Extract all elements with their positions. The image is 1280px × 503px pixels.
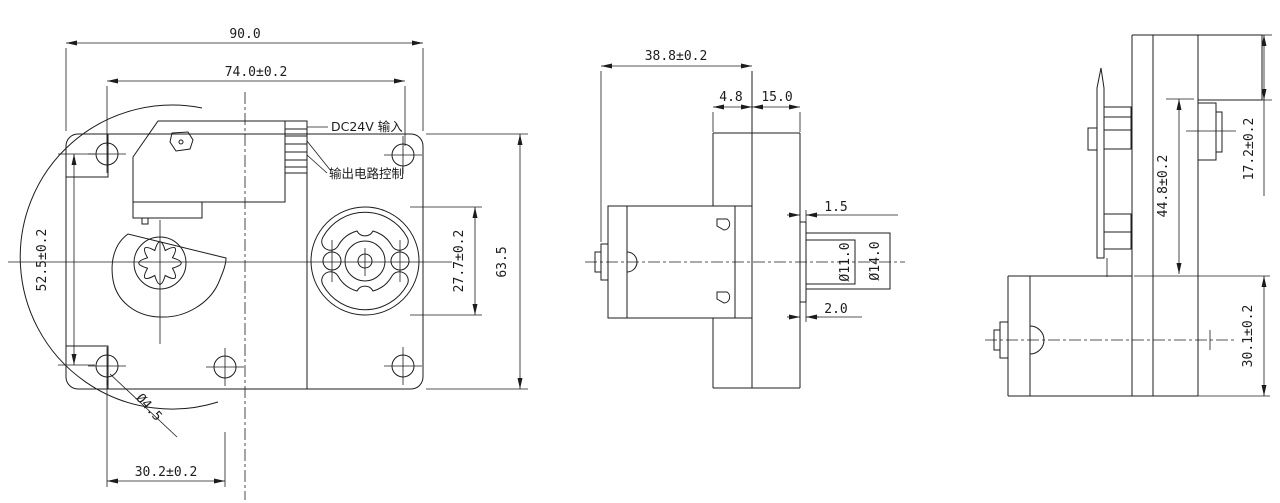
control-leaders: [307, 141, 331, 173]
housing-screw-hole: [170, 132, 193, 151]
front-dimensions: 90.0 74.0±0.2 52.5±0.2 63.5 27.7±0.2 30.…: [35, 27, 528, 487]
dim-depth: 38.8±0.2: [645, 49, 708, 64]
power-input-label: DC24V 输入: [331, 119, 403, 134]
dim-hole-span-v: 52.5±0.2: [35, 229, 50, 292]
end-connector: [1088, 68, 1131, 277]
dim-plate-height: 63.5: [495, 246, 510, 277]
pump-head: [311, 207, 419, 315]
pump-slot-top: [322, 212, 408, 250]
end-dimensions: 17.2±0.2 44.8±0.2 30.1±0.2: [1134, 35, 1272, 396]
end-view: 17.2±0.2 44.8±0.2 30.1±0.2: [985, 35, 1272, 396]
output-hub: [112, 220, 226, 344]
dim-hole-span-h: 74.0±0.2: [225, 65, 288, 80]
output-control-label: 输出电路控制: [329, 166, 404, 181]
dim-boss-dia: Ø14.0: [868, 241, 883, 280]
dim-face-to-motor: 44.8±0.2: [1156, 155, 1171, 218]
mount-ear-bottom: [717, 292, 730, 303]
dim-shaft-step-bottom: 2.0: [824, 302, 847, 317]
dim-pump-dia: 27.7±0.2: [452, 230, 467, 293]
pump-slot-bottom: [322, 272, 408, 310]
connector-pins: [285, 121, 307, 173]
dim-shaft-step-top: 1.5: [824, 200, 847, 215]
dim-motor-height: 30.1±0.2: [1241, 305, 1256, 368]
dim-boss-offset: 17.2±0.2: [1242, 118, 1257, 181]
drawing-canvas: DC24V 输入 输出电路控制: [0, 0, 1280, 503]
control-housing: [133, 121, 285, 224]
dim-flange-width: 15.0: [761, 90, 792, 105]
engineering-drawing: DC24V 输入 输出电路控制: [0, 0, 1280, 503]
dim-bottom-hole-span: 30.2±0.2: [135, 465, 198, 480]
connector-blade: [1097, 68, 1104, 258]
dim-hole-dia: Ø4.5: [133, 391, 165, 424]
dim-shaft-dia: Ø11.0: [838, 242, 853, 281]
hub-cam-outline: [112, 234, 226, 317]
dim-overall-width: 90.0: [229, 27, 260, 42]
end-output-boss: [1186, 103, 1236, 160]
mount-ear-top: [717, 219, 730, 230]
mount-lugs: [66, 134, 108, 389]
dim-flange-lip: 4.8: [719, 90, 742, 105]
side-dimensions: 38.8±0.2 4.8 15.0 1.5 2.0 Ø11.0 Ø14.0: [601, 49, 898, 322]
side-view: 38.8±0.2 4.8 15.0 1.5 2.0 Ø11.0 Ø14.0: [585, 49, 905, 388]
end-plate: [1008, 35, 1262, 396]
front-view: DC24V 输入 输出电路控制: [8, 27, 528, 500]
